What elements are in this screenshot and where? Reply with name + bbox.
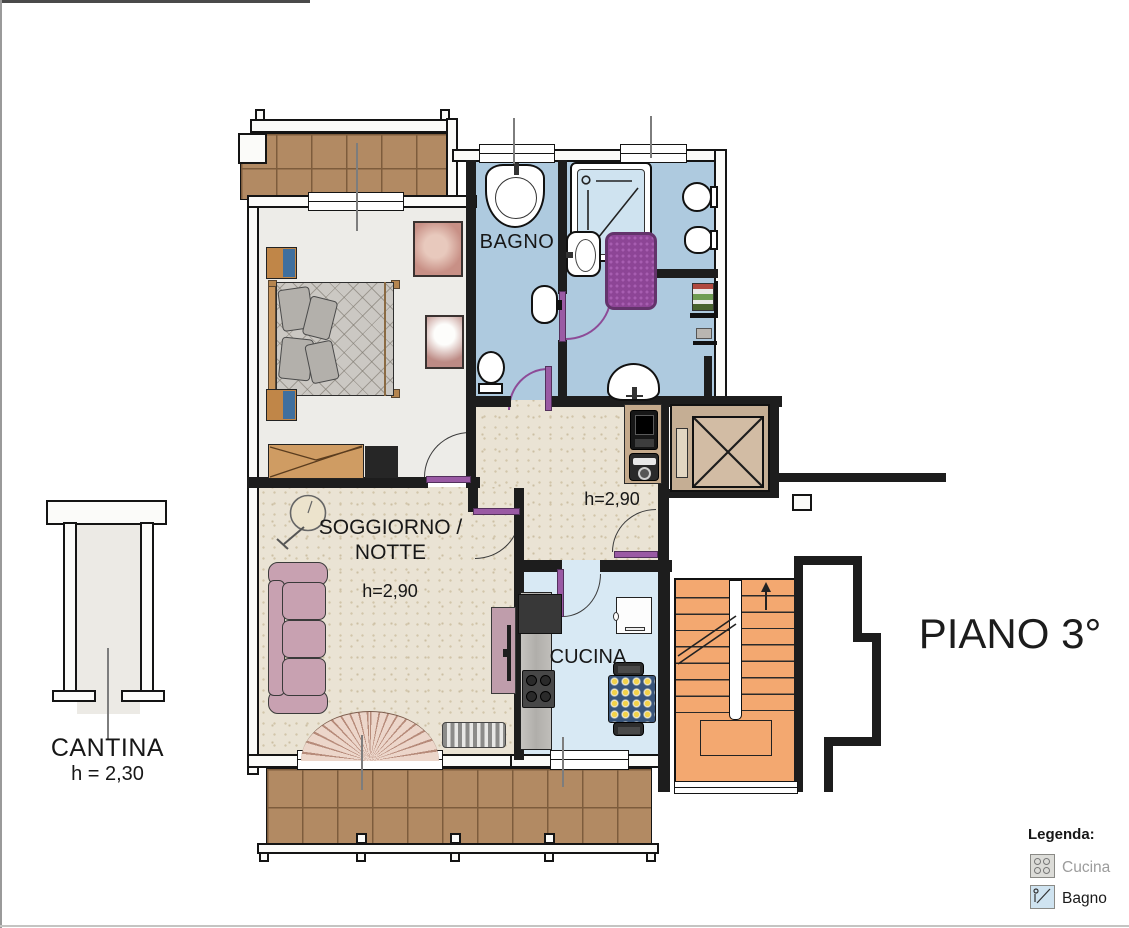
stove-icon <box>1030 854 1055 878</box>
wall-notch <box>792 494 812 511</box>
wall-segment <box>466 160 476 488</box>
intercom-unit <box>630 410 658 450</box>
railing-post <box>356 833 367 844</box>
bidet-body <box>684 226 713 254</box>
shower-icon <box>1030 885 1055 909</box>
room-label-bagno: BAGNO <box>472 230 562 255</box>
page-edge-left <box>0 0 2 928</box>
stair-annotations <box>676 580 794 782</box>
cantina-foot <box>52 690 96 702</box>
double-bed <box>268 280 400 398</box>
burner <box>1043 867 1050 874</box>
wall-segment <box>466 396 511 407</box>
nightstand <box>266 247 297 279</box>
floor-title: PIANO 3° <box>905 608 1115 661</box>
dimension-line <box>356 143 358 231</box>
washer-top-bar <box>633 458 656 465</box>
toilet-tank <box>710 186 718 208</box>
radiator-valve <box>557 300 562 310</box>
door-bedroom <box>426 476 471 483</box>
sink <box>566 231 601 277</box>
railing-foot <box>259 852 269 862</box>
railing-foot <box>356 852 366 862</box>
nightstand-top <box>283 391 295 419</box>
toilet-bowl <box>682 182 712 212</box>
shower-glyph-small <box>1031 886 1053 907</box>
sink-tap <box>632 387 637 399</box>
stove <box>522 670 555 708</box>
legend-title: Legenda: <box>1028 826 1108 845</box>
toilet-tank <box>478 383 503 394</box>
toilet <box>682 182 718 214</box>
dimension-line <box>361 735 363 790</box>
room-label-cucina: CUCINA <box>543 645 633 670</box>
tv-stand <box>503 649 508 657</box>
wall-segment <box>794 556 862 565</box>
wall-segment <box>514 560 562 572</box>
railing-post <box>544 833 555 844</box>
elevator-cab <box>692 416 764 488</box>
nightstand-top <box>283 249 295 277</box>
page-edge-top <box>0 0 310 3</box>
railing-foot <box>544 852 554 862</box>
bed-headboard <box>268 286 276 392</box>
door-bathroom2 <box>559 291 566 342</box>
balcony-top-tiles <box>240 133 452 200</box>
legend: Legenda: Cucina Bagno <box>1018 822 1128 922</box>
wall-segment <box>704 356 712 405</box>
bidet <box>684 226 718 256</box>
elevator-cross <box>694 418 762 486</box>
room-label-cantina: CANTINA <box>30 733 185 764</box>
chair-seat <box>618 727 640 734</box>
wall-segment <box>794 556 803 792</box>
washer-door <box>638 467 651 480</box>
burner <box>1034 867 1041 874</box>
page-edge-bottom <box>0 925 1129 927</box>
tv-cabinet <box>491 607 516 694</box>
wardrobe <box>268 444 364 479</box>
elevator-shaft <box>670 404 770 492</box>
window-bathroom1 <box>479 144 555 163</box>
sofa-cushion <box>282 582 326 620</box>
towel-radiator <box>531 285 558 324</box>
dimension-line <box>562 737 564 787</box>
wall-picture <box>425 315 464 369</box>
kitchen-tall-unit <box>518 594 562 634</box>
elevator-door <box>676 428 688 478</box>
burner <box>540 675 551 686</box>
wardrobe-lines <box>269 445 363 478</box>
cantina-wall-right <box>140 522 154 698</box>
dresser-black <box>365 446 398 478</box>
shelf-bracket <box>714 281 718 318</box>
sofa-cushion <box>282 620 326 658</box>
floor-plan-canvas: BAGNO SOGGIORNO / NOTTE h=2,90 h=2,90 CU… <box>0 0 1129 928</box>
wall-segment <box>830 737 881 746</box>
sink-basin <box>575 239 596 272</box>
radiator <box>442 722 506 748</box>
balcony-railing-top <box>250 119 454 133</box>
railing-post <box>450 833 461 844</box>
appliance-handle <box>625 627 645 631</box>
bath-rug <box>605 232 657 310</box>
sink-basin <box>495 177 537 219</box>
dimension-line <box>513 118 515 164</box>
room-label-soggiorno-line2: NOTTE <box>298 540 483 566</box>
cantina-pointer-line <box>107 648 109 740</box>
kitchen-appliance <box>616 597 652 634</box>
appliance-knob <box>613 612 619 621</box>
wall-segment <box>558 340 567 402</box>
ceiling-height-cantina: h = 2,30 <box>30 762 185 787</box>
room-label-soggiorno-line1: SOGGIORNO / <box>298 515 483 541</box>
wall-segment <box>648 269 718 278</box>
ceiling-height-soggiorno: h=2,90 <box>330 580 450 603</box>
small-shelf <box>693 326 717 348</box>
toilet <box>477 351 507 396</box>
burner <box>1034 858 1041 865</box>
burner <box>1043 858 1050 865</box>
sink-tap <box>566 252 573 258</box>
wall-segment <box>824 737 833 792</box>
window-stairwell <box>674 781 798 794</box>
towel-stack <box>696 328 712 339</box>
burner <box>526 691 537 702</box>
cantina-foot <box>121 690 165 702</box>
legend-label-bagno: Bagno <box>1062 889 1122 908</box>
door-entry <box>614 551 658 558</box>
wall-segment <box>558 160 567 294</box>
wall-segment <box>658 560 670 792</box>
shelf-board <box>693 341 717 345</box>
burner <box>540 691 551 702</box>
bed-footline <box>384 282 386 396</box>
window-bathroom2 <box>620 144 687 163</box>
wall-segment <box>766 473 946 482</box>
sink-tap <box>514 163 519 175</box>
door-living <box>473 508 520 515</box>
railing-foot <box>646 852 656 862</box>
bidet-tank <box>710 230 718 250</box>
intercom-screen <box>635 415 654 435</box>
railing-post <box>255 109 265 121</box>
burner <box>526 675 537 686</box>
sofa <box>268 562 330 714</box>
wall-picture <box>413 221 463 277</box>
nightstand <box>266 389 297 421</box>
balcony-pillar <box>238 133 267 164</box>
door-bathroom1 <box>545 366 552 411</box>
chair <box>613 722 644 736</box>
intercom-buttons <box>635 439 654 447</box>
cantina-wall-left <box>63 522 77 698</box>
wall-segment <box>853 556 862 642</box>
staircase <box>674 578 796 784</box>
toilet-bowl <box>477 351 505 384</box>
towel-stack <box>692 283 714 311</box>
legend-label-cucina: Cucina <box>1062 858 1122 877</box>
utility-cabinet <box>624 404 662 484</box>
towel-shelf <box>690 281 718 323</box>
dimension-line <box>650 116 652 158</box>
washing-machine <box>629 453 659 481</box>
sofa-cushion <box>282 658 326 696</box>
sink-tap-bar <box>626 395 643 397</box>
railing-foot <box>450 852 460 862</box>
ceiling-height-hallway: h=2,90 <box>566 488 658 511</box>
wall-segment <box>872 633 881 746</box>
kitchen-table <box>608 675 656 723</box>
